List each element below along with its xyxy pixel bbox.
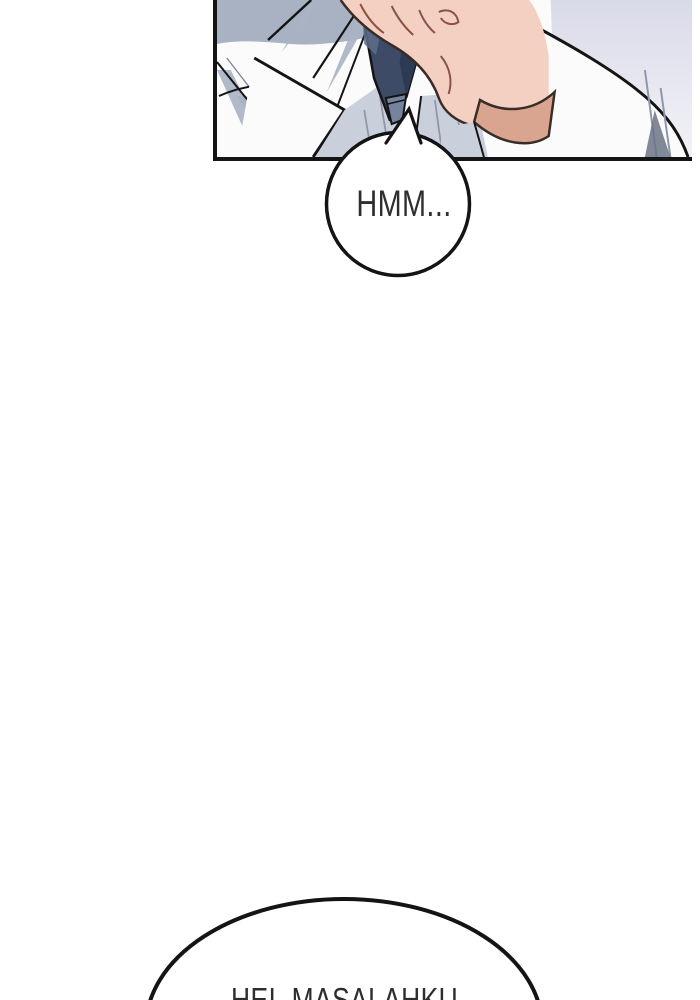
speech-bubble-bottom-text: HEI, MASALAHKU... (231, 983, 471, 1000)
speech-bubble-hmm-text: HMM... (330, 185, 478, 223)
webtoon-page: HMM... HEI, MASALAHKU... (0, 0, 700, 1000)
speech-bubble-hmm-tail (386, 109, 421, 143)
